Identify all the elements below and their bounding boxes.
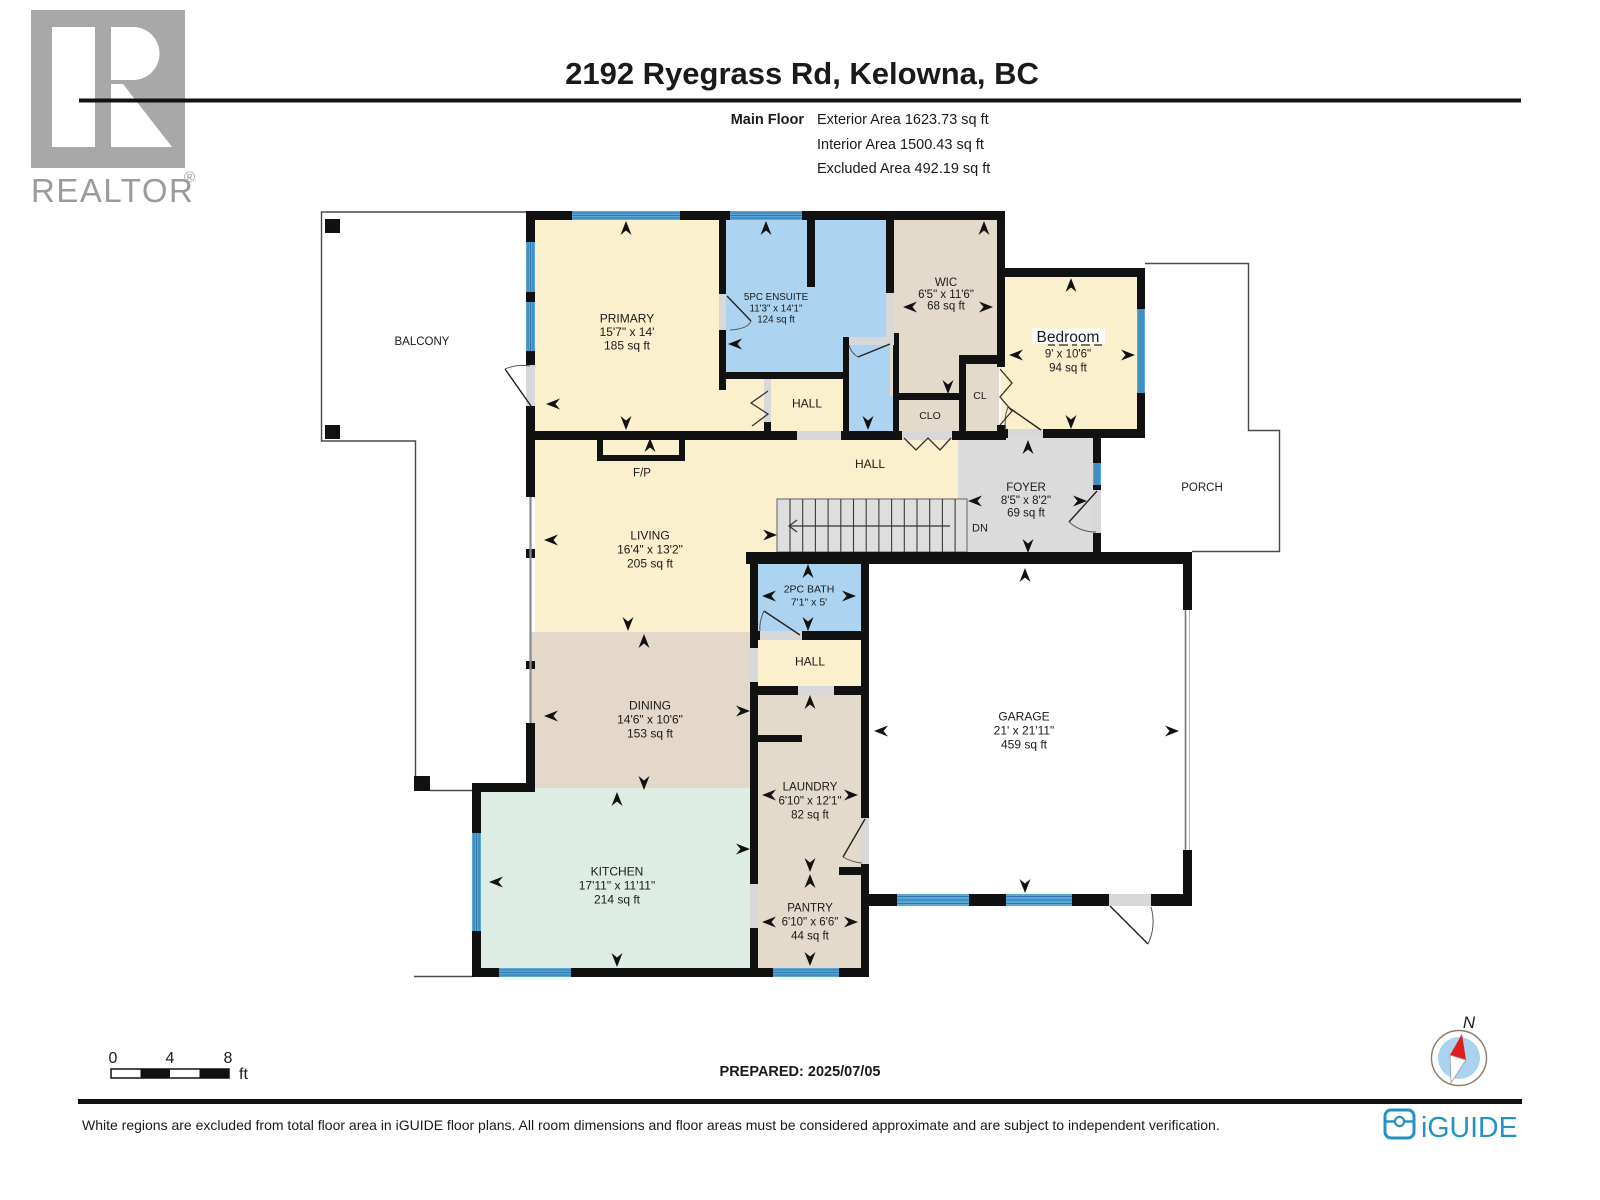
- svg-text:HALL: HALL: [792, 397, 822, 411]
- svg-text:HALL: HALL: [855, 457, 885, 471]
- svg-text:CL: CL: [973, 390, 987, 402]
- svg-text:N: N: [1463, 1013, 1476, 1032]
- svg-text:69 sq ft: 69 sq ft: [1007, 508, 1046, 520]
- svg-text:6'10" x 6'6": 6'10" x 6'6": [782, 917, 839, 929]
- svg-text:PREPARED: 2025/07/05: PREPARED: 2025/07/05: [720, 1064, 881, 1080]
- svg-text:®: ®: [184, 169, 195, 186]
- svg-text:WIC: WIC: [935, 277, 957, 289]
- svg-text:KITCHEN: KITCHEN: [591, 865, 644, 879]
- svg-text:LAUNDRY: LAUNDRY: [783, 782, 838, 794]
- svg-text:4: 4: [166, 1050, 175, 1067]
- svg-text:44 sq ft: 44 sq ft: [791, 931, 830, 943]
- svg-text:Exterior Area 1623.73 sq ft: Exterior Area 1623.73 sq ft: [817, 112, 989, 128]
- svg-text:16'4" x 13'2": 16'4" x 13'2": [617, 543, 683, 557]
- svg-text:Main Floor: Main Floor: [731, 112, 805, 128]
- svg-text:6'10" x 12'1": 6'10" x 12'1": [778, 796, 841, 808]
- svg-text:Bedroom: Bedroom: [1037, 329, 1100, 346]
- svg-text:459 sq ft: 459 sq ft: [1001, 738, 1048, 752]
- svg-text:ft: ft: [239, 1066, 248, 1083]
- svg-text:7'1" x 5': 7'1" x 5': [791, 597, 827, 609]
- svg-text:185 sq ft: 185 sq ft: [604, 339, 651, 353]
- svg-text:PANTRY: PANTRY: [787, 903, 833, 915]
- svg-text:HALL: HALL: [795, 655, 825, 669]
- svg-text:CLO: CLO: [919, 410, 941, 422]
- svg-text:14'6" x 10'6": 14'6" x 10'6": [617, 713, 683, 727]
- svg-text:68 sq ft: 68 sq ft: [927, 301, 966, 313]
- svg-text:11'3" x 14'1": 11'3" x 14'1": [749, 304, 803, 315]
- svg-text:17'11" x 11'11": 17'11" x 11'11": [579, 879, 656, 893]
- svg-text:DINING: DINING: [629, 699, 671, 713]
- svg-text:21' x 21'11": 21' x 21'11": [994, 724, 1055, 738]
- svg-text:2192 Ryegrass Rd, Kelowna, BC: 2192 Ryegrass Rd, Kelowna, BC: [565, 56, 1039, 91]
- svg-text:F/P: F/P: [633, 468, 651, 480]
- svg-text:94 sq ft: 94 sq ft: [1049, 363, 1088, 375]
- svg-text:15'7" x 14': 15'7" x 14': [600, 325, 655, 339]
- svg-text:FOYER: FOYER: [1006, 482, 1046, 494]
- svg-text:214 sq ft: 214 sq ft: [594, 893, 641, 907]
- svg-text:153 sq ft: 153 sq ft: [627, 727, 674, 741]
- svg-text:PRIMARY: PRIMARY: [600, 312, 654, 326]
- svg-text:9' x 10'6": 9' x 10'6": [1045, 349, 1091, 361]
- svg-text:REALTOR: REALTOR: [31, 172, 194, 209]
- svg-text:8'5" x 8'2": 8'5" x 8'2": [1001, 495, 1051, 507]
- svg-text:PORCH: PORCH: [1181, 482, 1223, 494]
- svg-text:DN: DN: [972, 523, 988, 535]
- svg-text:2PC BATH: 2PC BATH: [784, 584, 835, 596]
- svg-text:BALCONY: BALCONY: [395, 336, 450, 348]
- svg-text:Excluded Area 492.19 sq ft: Excluded Area 492.19 sq ft: [817, 161, 990, 177]
- svg-text:5PC ENSUITE: 5PC ENSUITE: [744, 292, 809, 303]
- svg-text:8: 8: [224, 1050, 233, 1067]
- svg-text:6'5" x 11'6": 6'5" x 11'6": [918, 289, 974, 301]
- svg-text:82 sq ft: 82 sq ft: [791, 810, 830, 822]
- svg-text:GARAGE: GARAGE: [998, 710, 1049, 724]
- svg-text:124 sq ft: 124 sq ft: [757, 315, 795, 326]
- svg-text:0: 0: [109, 1050, 118, 1067]
- svg-text:Interior Area 1500.43 sq ft: Interior Area 1500.43 sq ft: [817, 137, 984, 153]
- svg-text:LIVING: LIVING: [630, 529, 669, 543]
- svg-text:White regions are excluded fro: White regions are excluded from total fl…: [82, 1117, 1220, 1133]
- svg-text:iGUIDE: iGUIDE: [1421, 1112, 1518, 1144]
- svg-text:205 sq ft: 205 sq ft: [627, 557, 674, 571]
